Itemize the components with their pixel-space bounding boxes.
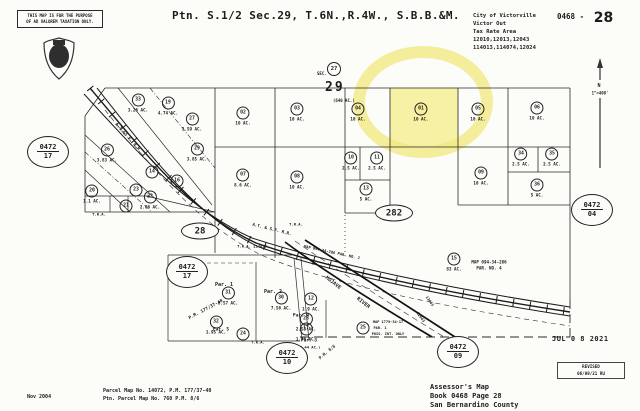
parcel-acreage: 5 AC. xyxy=(531,193,544,198)
parcel-acreage: 7.56 AC. xyxy=(271,306,291,311)
parcel-10: 102.5 AC. xyxy=(342,152,360,171)
map-label: PAR. 1 xyxy=(374,326,387,330)
parcel-21: 21 xyxy=(120,200,133,213)
parcel-acreage: 10 AC. xyxy=(473,181,488,186)
map-label: Par. 1 xyxy=(215,282,233,288)
parcel-number-circle: 17 xyxy=(299,323,312,336)
parcel-20: 201.1 AC. xyxy=(83,185,101,204)
parcel-03: 0310 AC. xyxy=(289,103,304,122)
parcel-number-circle: 01 xyxy=(414,103,427,116)
parcel-acreage: 1.9 AC. xyxy=(302,307,320,312)
parcel-acreage: 3.26 AC. xyxy=(128,108,148,113)
parcel-number-circle: 29 xyxy=(190,143,203,156)
parcel-number-circle: 09 xyxy=(474,167,487,180)
parcel-08: 0810 AC. xyxy=(289,171,304,190)
assessor-line2: Book 0468 Page 28 xyxy=(430,392,519,401)
parcel-number-circle: 14 xyxy=(146,166,159,179)
parcel-acreage: 3.85 AC. xyxy=(187,157,207,162)
assessor-map-sheet: THIS MAP IS FOR THE PURPOSE OF AD VALORE… xyxy=(0,0,640,411)
city-name: City of Victorville xyxy=(473,13,536,21)
parcel-number-circle: 31 xyxy=(221,287,234,300)
parcel-number-circle: 36 xyxy=(531,179,544,192)
ref-book-number: 0472 xyxy=(276,349,299,358)
adjacent-page-ref: 047217 xyxy=(27,136,69,168)
railroad-row-dashed xyxy=(105,110,570,326)
source-map-line1: Parcel Map No. 14072, P.M. 177/37-40 xyxy=(103,388,211,396)
ref-page-number: 17 xyxy=(44,152,52,161)
revision-box: REVISED 06/09/21 RU xyxy=(557,362,625,379)
assessor-map-caption: Assessor's Map Book 0468 Page 28 San Ber… xyxy=(430,383,519,409)
received-date-stamp: JUL 0 8 2021 xyxy=(552,335,609,343)
parcel-acreage: 10 AC. xyxy=(470,117,485,122)
parcel-acreage: 2.5 AC. xyxy=(368,166,386,171)
parcel-22: 222.86 AC. xyxy=(140,191,160,210)
parcel-acreage: 10 AC. xyxy=(289,117,304,122)
county-seal-icon xyxy=(40,36,78,82)
parcel-12: 121.9 AC. xyxy=(302,293,320,312)
parcel-number-circle: 08 xyxy=(290,171,303,184)
boundary-oval-marker: 282 xyxy=(375,205,413,222)
parcel-acreage: 10 AC. xyxy=(529,116,544,121)
parcel-number-circle: 06 xyxy=(530,102,543,115)
district-name: Victor Out xyxy=(473,21,536,29)
map-label: PAR. NO. 4 xyxy=(476,266,501,271)
map-title: Ptn. S.1/2 Sec.29, T.6N.,R.4W., S.B.B.&M… xyxy=(172,9,460,22)
map-label: POSS. INT. ONLY xyxy=(372,332,404,336)
parcel-number-circle: 22 xyxy=(143,191,156,204)
parcel-13: 135 AC. xyxy=(360,183,373,202)
parcel-number-circle: 27 xyxy=(185,113,198,126)
parcel-05: 0510 AC. xyxy=(470,103,485,122)
source-map-references: Parcel Map No. 14072, P.M. 177/37-40 Ptn… xyxy=(103,388,211,403)
boundary-oval-marker: 28 xyxy=(181,223,219,240)
parcel-33: 333.26 AC. xyxy=(128,94,148,113)
tax-rate-area-label: Tax Rate Area xyxy=(473,29,536,37)
map-label: T.R.A. xyxy=(92,212,106,217)
adjacent-section-circle: 27 xyxy=(327,62,341,76)
parcel-number-circle: 11 xyxy=(371,152,384,165)
ref-book-number: 0472 xyxy=(37,143,60,152)
parcel-acreage: 3.83 AC. xyxy=(97,158,117,163)
disclaimer-line2: OF AD VALOREM TAXATION ONLY. xyxy=(19,19,101,25)
parcel-07: 078.6 AC. xyxy=(234,169,252,188)
parcel-acreage: 3.59 AC. xyxy=(182,127,202,132)
parcel-02: 0210 AC. xyxy=(235,107,250,126)
parcel-number-circle: 04 xyxy=(351,103,364,116)
parcel-number-circle: 21 xyxy=(120,200,133,213)
north-arrow-icon xyxy=(597,58,603,168)
book-page-number: 0468 - 28 xyxy=(557,7,613,26)
parcel-acreage: 5 AC. xyxy=(360,197,373,202)
sec-label: SEC. xyxy=(317,71,327,76)
parcel-06: 0610 AC. xyxy=(529,102,544,121)
ref-book-number: 0472 xyxy=(176,263,199,272)
map-label: T.R.A. 114013 xyxy=(237,244,267,249)
section-number: 29 xyxy=(325,80,345,95)
parcel-25: 25 xyxy=(357,322,370,335)
parcel-number-circle: 03 xyxy=(290,103,303,116)
source-map-line2: Ptn. Parcel Map No. 760 P.M. 8/6 xyxy=(103,396,211,404)
parcel-19: 194.74 AC. xyxy=(158,97,178,116)
parcel-number-circle: 07 xyxy=(237,169,250,182)
map-date: Nov 2004 xyxy=(27,394,51,400)
map-label: Par. 2 xyxy=(264,289,282,295)
parcel-number-circle: 24 xyxy=(237,328,250,341)
parcel-acreage: 8.6 AC. xyxy=(234,183,252,188)
parcel-acreage: 10 AC. xyxy=(289,185,304,190)
adjacent-page-ref: 047217 xyxy=(166,256,208,288)
parcel-01: 0110 AC. xyxy=(413,103,428,122)
parcel-acreage: 2.5 AC. xyxy=(543,162,561,167)
adjacent-page-ref: 047210 xyxy=(266,342,308,374)
map-label: MAP 094-34-286 xyxy=(471,260,506,265)
parcel-number-circle: 16 xyxy=(171,175,184,188)
parcel-number-circle: 26 xyxy=(100,144,113,157)
parcel-number-circle: 33 xyxy=(131,94,144,107)
parcel-acreage: 10 AC. xyxy=(235,121,250,126)
parcel-11: 112.5 AC. xyxy=(368,152,386,171)
parcel-acreage: 1.1 AC. xyxy=(83,199,101,204)
map-label: MAP 1779-34-17 xyxy=(373,320,403,324)
ref-page-number: 10 xyxy=(283,358,291,367)
revised-date: 06/09/21 RU xyxy=(558,371,624,378)
parcel-acreage: 4.74 AC. xyxy=(158,111,178,116)
parcel-acreage: 10 AC. xyxy=(350,117,365,122)
parcel-acreage: 2.5 AC. xyxy=(512,162,530,167)
parcel-number-circle: 35 xyxy=(546,148,559,161)
ref-page-number: 04 xyxy=(588,210,596,219)
parcel-number-circle: 12 xyxy=(305,293,318,306)
parcel-36: 365 AC. xyxy=(531,179,544,198)
north-label: N xyxy=(597,83,600,89)
parcel-acreage: 10 AC. xyxy=(413,117,428,122)
parcel-acreage: 83 AC. xyxy=(446,267,461,272)
adjacent-page-ref: 047209 xyxy=(437,336,479,368)
revised-label: REVISED xyxy=(558,364,624,371)
parcel-26: 263.83 AC. xyxy=(97,144,117,163)
parcel-acreage: 2.5 AC. xyxy=(342,166,360,171)
disclaimer-box: THIS MAP IS FOR THE PURPOSE OF AD VALORE… xyxy=(17,10,103,28)
parcel-acreage: 2.86 AC. xyxy=(140,205,160,210)
map-label: T.R.A. xyxy=(251,340,265,345)
parcel-29: 293.85 AC. xyxy=(187,143,207,162)
parcel-34: 342.5 AC. xyxy=(512,148,530,167)
parcel-number-circle: 25 xyxy=(357,322,370,335)
parcel-number-circle: 20 xyxy=(86,185,99,198)
tax-rate-codes-1: 12010,12013,12043 xyxy=(473,37,536,45)
map-label: T.R.A. xyxy=(289,222,303,227)
parcel-27: 273.59 AC. xyxy=(182,113,202,132)
tax-rate-codes-2: 114013,114074,12024 xyxy=(473,45,536,53)
parcel-number-circle: 34 xyxy=(515,148,528,161)
parcel-number-circle: 05 xyxy=(471,103,484,116)
map-label: Par. 4 xyxy=(293,314,309,319)
parcel-number-circle: 02 xyxy=(236,107,249,120)
assessor-line3: San Bernardino County xyxy=(430,401,519,410)
book-number: 0468 - xyxy=(557,12,584,21)
map-label: Par. 3 xyxy=(301,339,317,344)
parcel-number-circle: 13 xyxy=(360,183,373,196)
map-label: Par. 5 xyxy=(213,328,229,333)
ref-book-number: 0472 xyxy=(581,201,604,210)
ref-page-number: 09 xyxy=(454,352,462,361)
parcel-16: 16 xyxy=(171,175,184,188)
page-number: 28 xyxy=(594,10,613,26)
map-scale: 1"=400' xyxy=(592,91,609,96)
parcel-24: 24 xyxy=(237,328,250,341)
parcel-04: 0410 AC. xyxy=(350,103,365,122)
adjacent-page-ref: 047204 xyxy=(571,194,613,226)
parcel-number-circle: 15 xyxy=(447,253,460,266)
parcel-number-circle: 10 xyxy=(345,152,358,165)
parcel-09: 0910 AC. xyxy=(473,167,488,186)
ref-book-number: 0472 xyxy=(447,343,470,352)
parcel-35: 352.5 AC. xyxy=(543,148,561,167)
tax-rate-area-block: City of Victorville Victor Out Tax Rate … xyxy=(473,13,536,53)
ref-page-number: 17 xyxy=(183,272,191,281)
parcel-15: 1583 AC. xyxy=(446,253,461,272)
assessor-line1: Assessor's Map xyxy=(430,383,519,392)
parcel-number-circle: 19 xyxy=(161,97,174,110)
parcel-14: 14 xyxy=(146,166,159,179)
